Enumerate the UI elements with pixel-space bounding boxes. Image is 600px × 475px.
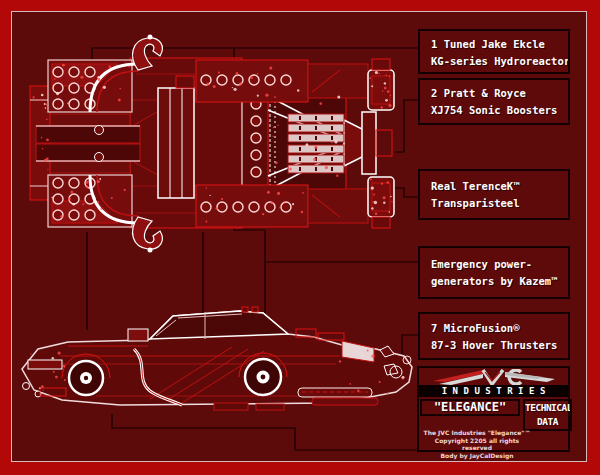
- callout-transparisteel: Real TerenceK™ Transparisteel: [418, 169, 570, 220]
- callout-line: Emergency power-: [431, 256, 566, 273]
- booster-slats: [288, 114, 344, 142]
- callout-line: 2 Pratt & Royce: [431, 85, 566, 102]
- callout-line: KG-series Hydroreactor: [431, 53, 566, 70]
- callout-power-generators: Emergency power- generators by Kazem™: [418, 246, 570, 299]
- technical-data-plate: TECHNICAL DATA: [523, 399, 572, 431]
- callout-line: 1 Tuned Jake Ekcle: [431, 36, 566, 53]
- callout-line: Real TerenceK™: [431, 178, 566, 195]
- callout-hydroreactor: 1 Tuned Jake Ekcle KG-series Hydroreacto…: [418, 29, 570, 74]
- stud-grid: [53, 67, 95, 109]
- front-grille: [28, 360, 62, 369]
- callout-line: 7 MicroFusion®: [431, 320, 566, 337]
- callout-hover-thrusters: 7 MicroFusion® 87-3 Hover Thrusters: [418, 312, 570, 360]
- rear-wheel: [245, 359, 281, 395]
- technical-line: DATA: [525, 415, 570, 429]
- intake-scoop: [128, 329, 148, 341]
- front-wheel: [69, 361, 103, 395]
- top-view-drawing: [30, 35, 394, 253]
- technical-line: TECHNICAL: [525, 401, 570, 415]
- callout-line: generators by Kazem™: [431, 273, 566, 290]
- blueprint-page: 1 Tuned Jake Ekcle KG-series Hydroreacto…: [0, 0, 600, 475]
- logo-panel: INDUSTRIES "ELEGANCE" TECHNICAL DATA The…: [417, 366, 570, 452]
- callout-line: XJ754 Sonic Boosters: [431, 102, 566, 119]
- copyright-fine-print: The JVC Industries "Elegance"™ Copyright…: [421, 429, 533, 459]
- side-view-drawing: [22, 307, 412, 410]
- industries-bar: INDUSTRIES: [419, 385, 568, 397]
- jvc-wings-logo: [433, 369, 555, 385]
- callout-sonic-boosters: 2 Pratt & Royce XJ754 Sonic Boosters: [418, 78, 570, 125]
- callout-line: Transparisteel: [431, 195, 566, 212]
- model-name-plate: "ELEGANCE": [420, 399, 520, 416]
- callout-line: 87-3 Hover Thrusters: [431, 337, 566, 354]
